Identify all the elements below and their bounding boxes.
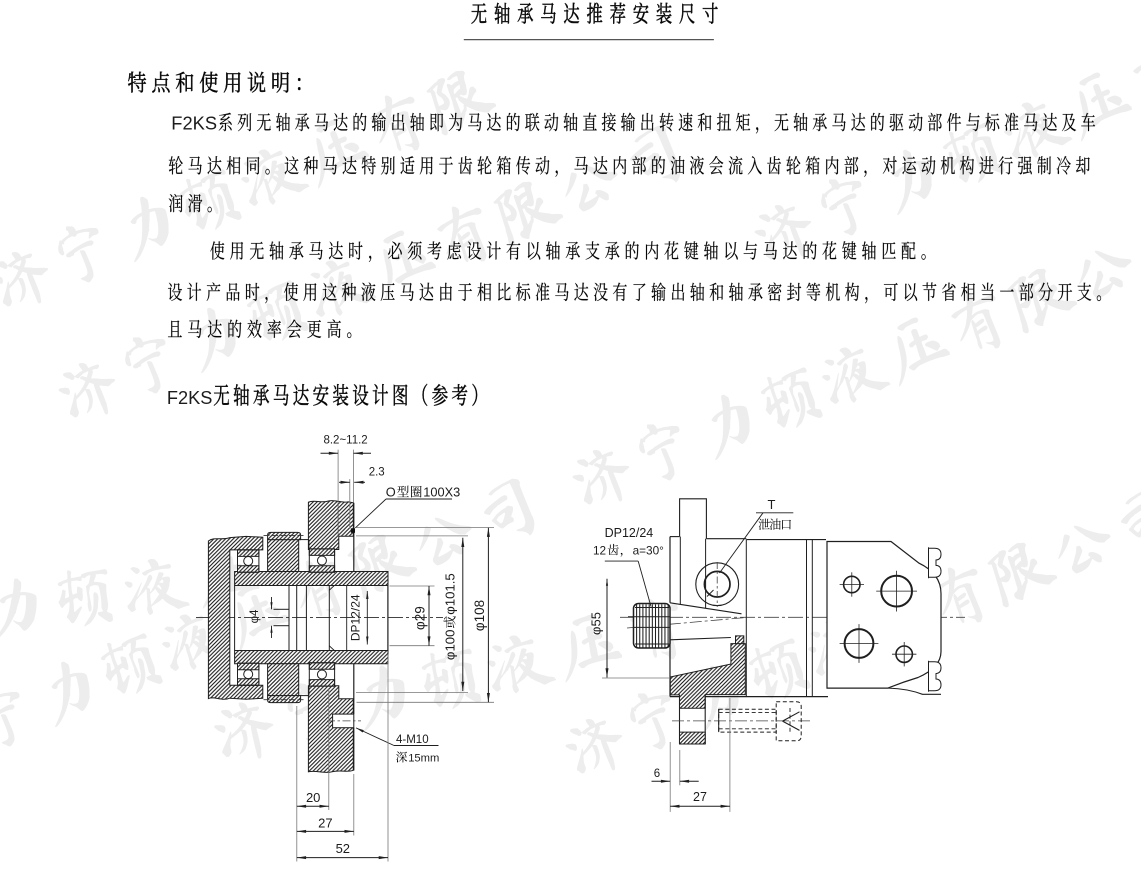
svg-text:100X3: 100X3 [423, 485, 460, 500]
svg-text:a=30°: a=30° [633, 543, 665, 557]
svg-text:15mm: 15mm [408, 753, 439, 765]
svg-text:DP12/24: DP12/24 [605, 526, 654, 540]
svg-text:F2KS: F2KS [171, 113, 217, 134]
svg-text:φ108: φ108 [472, 600, 487, 631]
svg-text:φ4: φ4 [249, 609, 261, 623]
svg-text:φ29: φ29 [412, 606, 427, 630]
svg-text:2.3: 2.3 [369, 466, 385, 478]
svg-text:F2KS: F2KS [167, 388, 213, 408]
svg-text:DP12/24: DP12/24 [348, 594, 362, 641]
svg-text:4-M10: 4-M10 [396, 734, 429, 746]
svg-text:φ55: φ55 [589, 612, 604, 635]
svg-text:27: 27 [693, 790, 707, 804]
svg-text:20: 20 [306, 790, 320, 805]
svg-text:φ100: φ100 [443, 630, 458, 661]
svg-text:6: 6 [654, 768, 660, 780]
svg-text:12: 12 [593, 543, 606, 557]
svg-text:52: 52 [336, 841, 350, 856]
svg-text:O: O [386, 485, 396, 500]
svg-text:T: T [768, 497, 776, 512]
svg-text:8.2~11.2: 8.2~11.2 [323, 434, 367, 446]
svg-text:φ101.5: φ101.5 [443, 573, 458, 615]
svg-text:27: 27 [318, 815, 332, 830]
